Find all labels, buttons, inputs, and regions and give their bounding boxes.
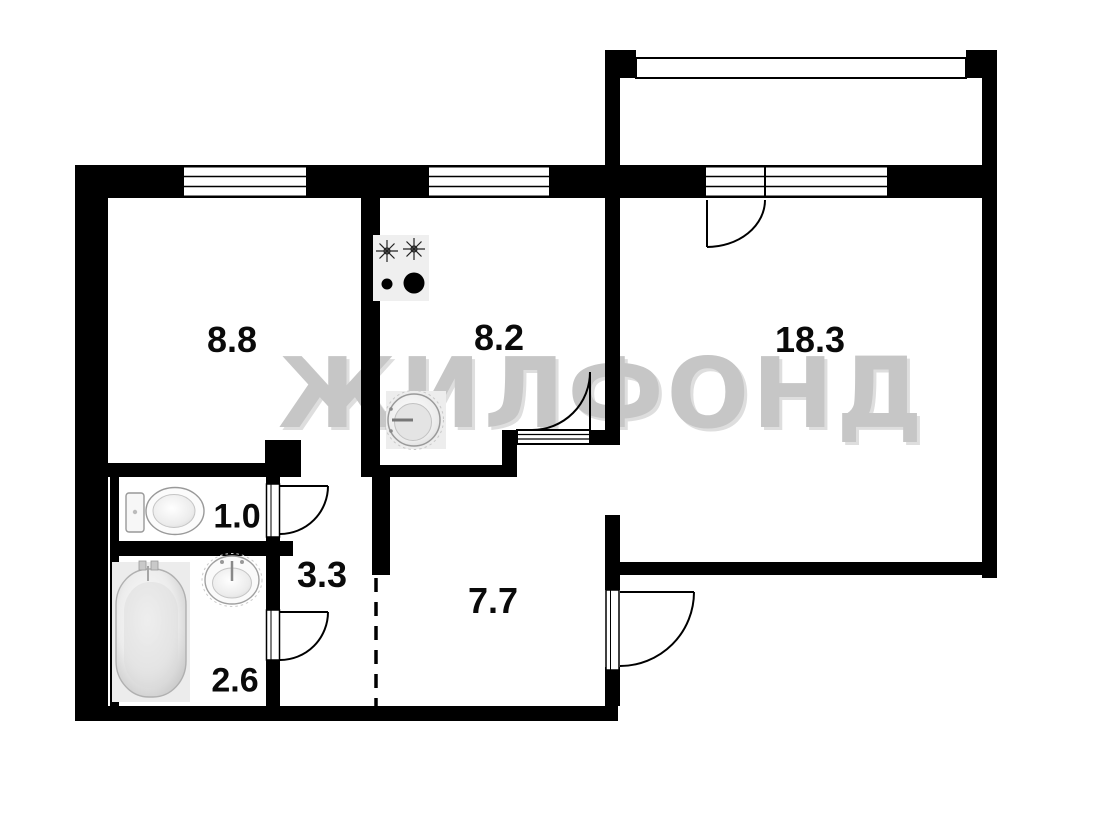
room-label-corridor: 7.7 [468, 580, 518, 622]
floor-plan: ЖИЛФОНД [0, 0, 1107, 813]
room-label-main-room: 18.3 [775, 319, 845, 361]
bathroom-door [267, 610, 329, 660]
bathtub-icon [112, 561, 190, 702]
balcony-glazing [636, 58, 966, 78]
toilet-door [267, 484, 329, 537]
entrance-door [606, 590, 694, 670]
room-label-hallway: 3.3 [297, 554, 347, 596]
window-living-room [183, 167, 307, 197]
room-label-bathroom: 2.6 [211, 662, 258, 701]
window-kitchen [428, 167, 550, 197]
burner-small [382, 279, 393, 290]
stove-icon [373, 235, 429, 301]
room-label-kitchen: 8.2 [474, 317, 524, 359]
room-label-toilet: 1.0 [213, 498, 260, 537]
walls [75, 50, 997, 721]
floor-plan-drawing [0, 0, 1107, 813]
burner-large [404, 273, 425, 294]
kitchen-sink-icon [385, 391, 447, 450]
bathroom-sink-icon [202, 554, 262, 607]
balcony-door [707, 200, 765, 247]
room-label-living-room: 8.8 [207, 319, 257, 361]
window-main-room [705, 167, 888, 197]
kitchen-door [517, 372, 590, 444]
toilet-icon [126, 488, 204, 535]
